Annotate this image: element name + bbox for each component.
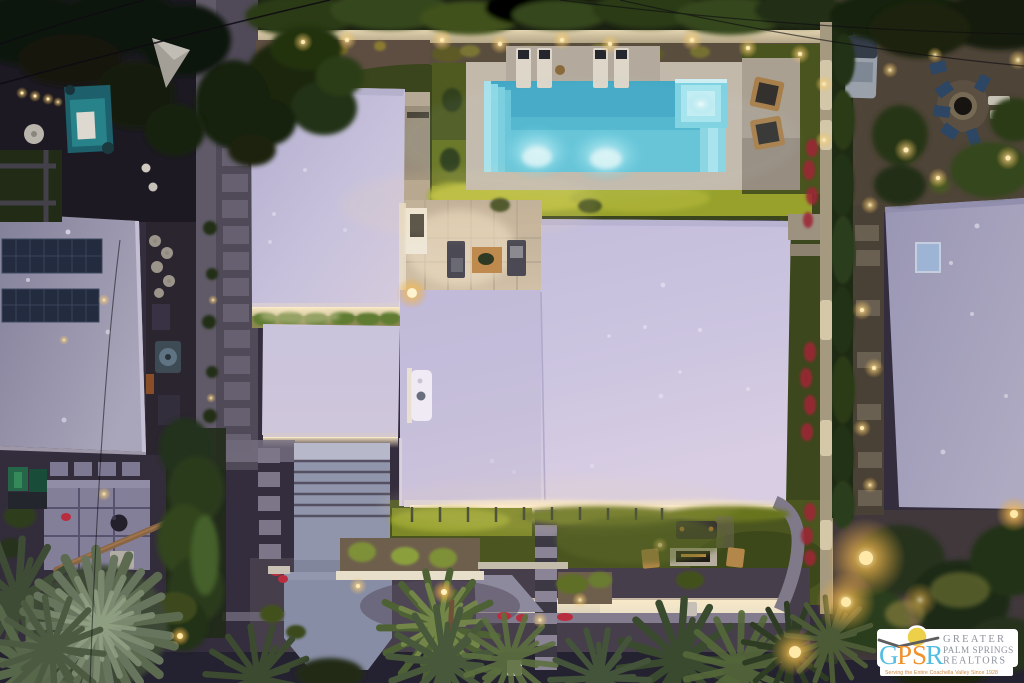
svg-text:GPSR: GPSR	[879, 640, 944, 670]
svg-text:REALTORS: REALTORS	[943, 656, 1007, 667]
svg-text:GREATER: GREATER	[943, 634, 1006, 645]
svg-text:Serving the Entire Coachella V: Serving the Entire Coachella Valley Sinc…	[885, 670, 998, 676]
svg-text:PALM SPRINGS: PALM SPRINGS	[943, 645, 1014, 655]
